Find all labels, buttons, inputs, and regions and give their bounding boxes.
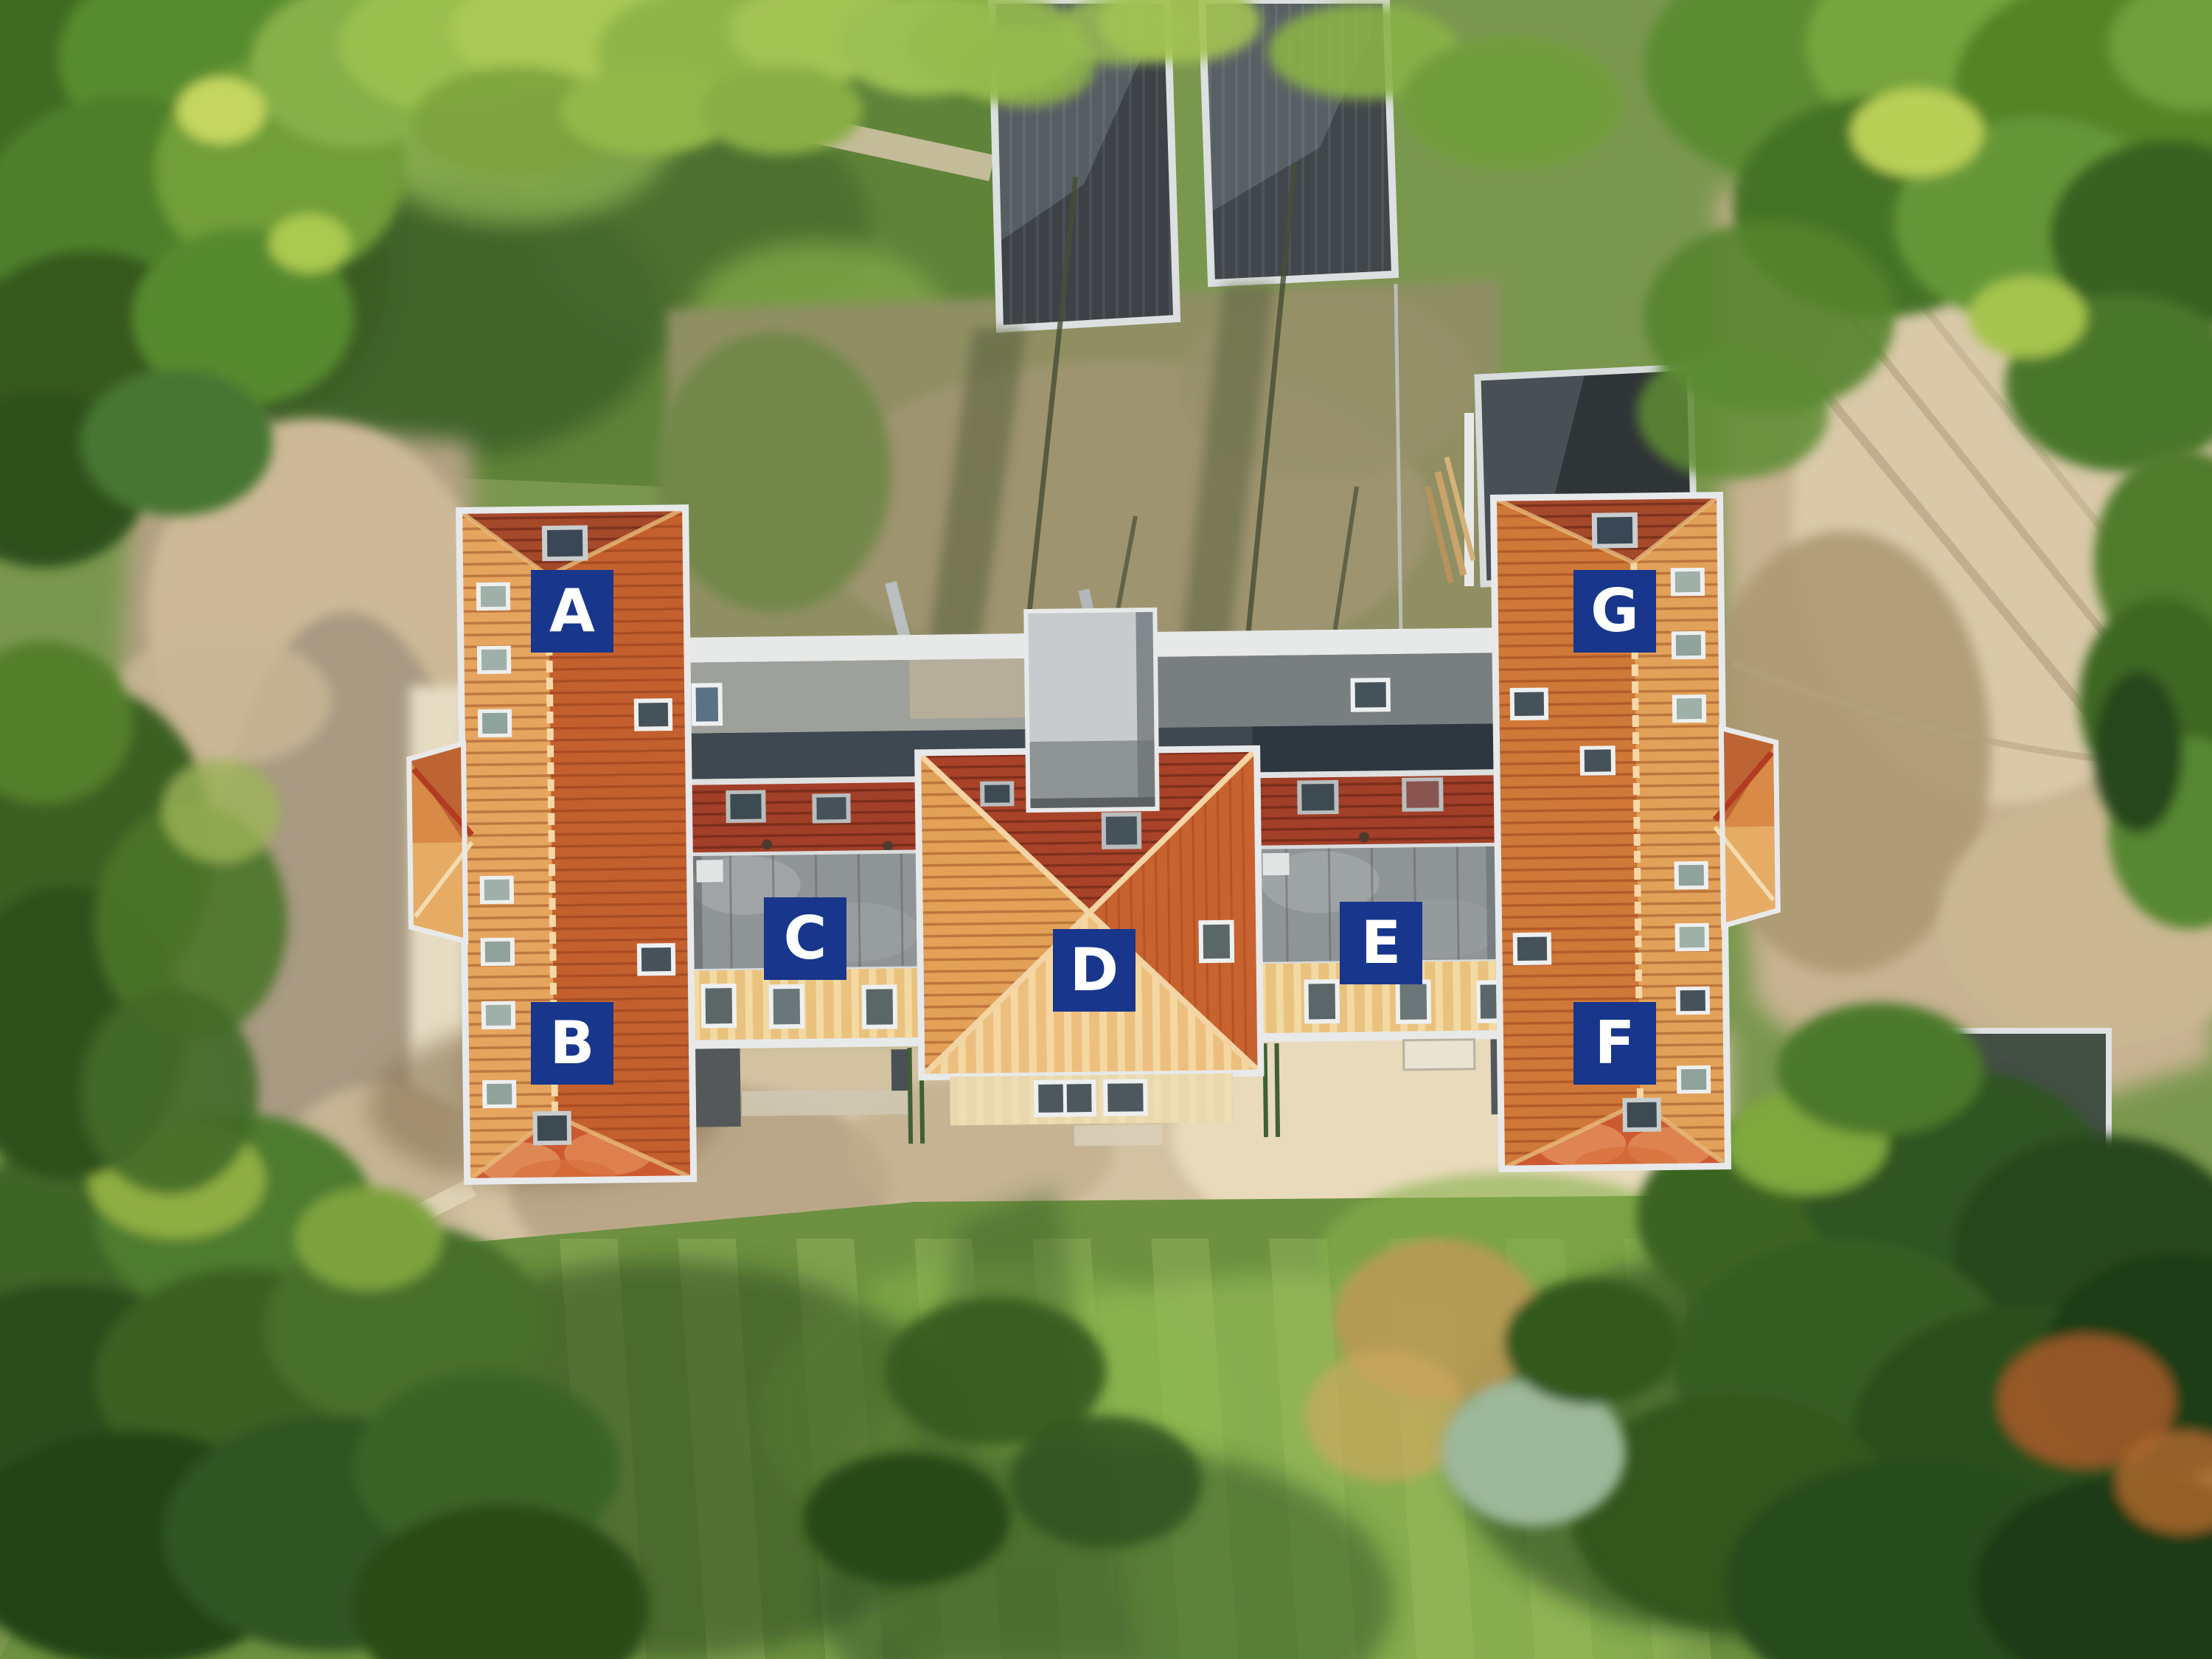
- wing-left-annex: [408, 743, 473, 942]
- unit-label-c: C: [764, 897, 846, 980]
- unit-letter: E: [1361, 914, 1402, 973]
- unit-label-a: A: [531, 570, 613, 653]
- unit-label-f: F: [1573, 1002, 1656, 1085]
- unit-letter: B: [550, 1014, 595, 1073]
- unit-label-d: D: [1053, 929, 1135, 1012]
- unit-letter: C: [784, 909, 827, 968]
- unit-letter: A: [549, 582, 595, 641]
- unit-label-e: E: [1340, 902, 1422, 984]
- chimney-block: [1026, 610, 1157, 810]
- aerial-photo: [0, 0, 2212, 1659]
- unit-label-g: G: [1573, 570, 1656, 653]
- unit-label-b: B: [531, 1002, 613, 1085]
- wing-right-annex: [1714, 728, 1778, 926]
- unit-letter: G: [1590, 582, 1639, 641]
- unit-letter: D: [1070, 941, 1119, 1000]
- aerial-photo-stage: A B C D E F G: [0, 0, 2212, 1659]
- unit-letter: F: [1595, 1014, 1635, 1073]
